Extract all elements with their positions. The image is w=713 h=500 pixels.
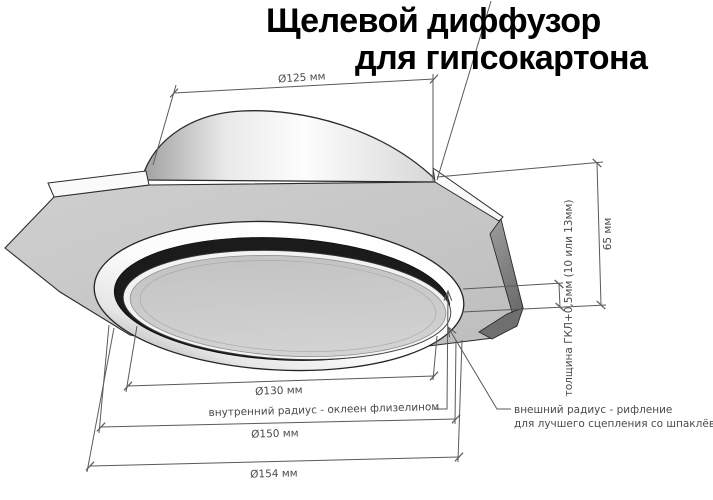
label-ring-diameter: Ø150 мм	[251, 427, 299, 440]
label-outer-radius-note-line2: для лучшего сцепления со шпаклёвкой	[514, 418, 713, 430]
label-outer-diameter: Ø154 мм	[250, 467, 298, 480]
label-disc-diameter: Ø130 мм	[255, 384, 303, 398]
label-inner-radius-note: внутренний радиус - оклеен флизелином	[208, 401, 439, 419]
dome	[142, 111, 437, 182]
label-outer-radius-note-line1: внешний радиус - рифление	[514, 404, 672, 416]
label-height: 65 мм	[602, 218, 614, 251]
label-top-diameter: Ø125 мм	[278, 71, 326, 86]
technical-drawing-page: Ø125 мм 65 мм толщина ГКЛ+0,5мм (10 или …	[0, 0, 713, 500]
label-board-thickness: толщина ГКЛ+0,5мм (10 или 13мм)	[563, 200, 575, 397]
page-title-line1: Щелевой диффузор	[266, 3, 601, 39]
page-title-line2: для гипсокартона	[355, 40, 647, 76]
